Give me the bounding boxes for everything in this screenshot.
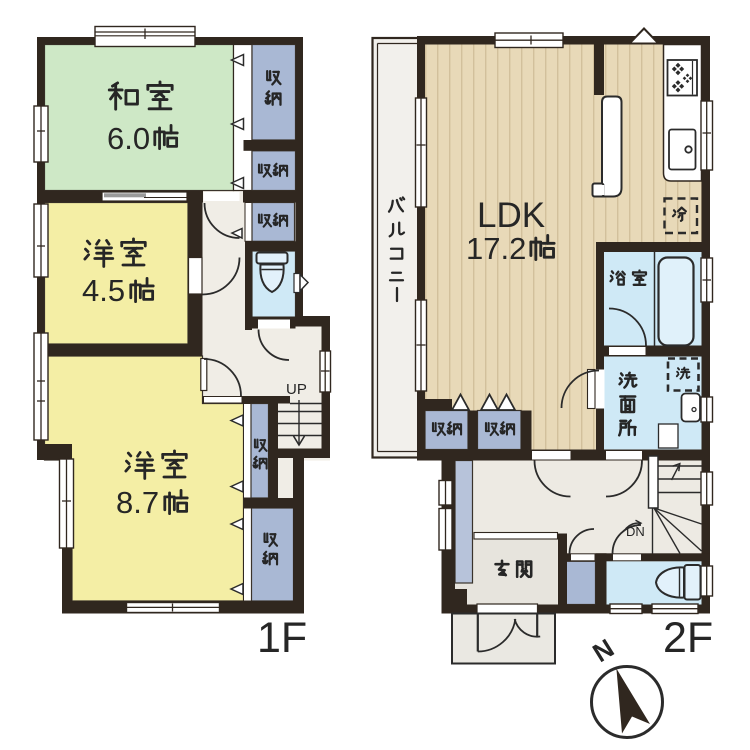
- svg-text:UP: UP: [286, 381, 307, 398]
- svg-text:DN: DN: [626, 524, 645, 539]
- svg-text:4.5: 4.5: [82, 273, 125, 308]
- svg-text:2F: 2F: [663, 614, 713, 662]
- svg-text:8.7: 8.7: [116, 485, 159, 520]
- svg-text:17.2: 17.2: [466, 231, 526, 266]
- svg-text:6.0: 6.0: [107, 121, 150, 156]
- svg-text:LDK: LDK: [477, 196, 545, 235]
- svg-text:1F: 1F: [257, 614, 307, 662]
